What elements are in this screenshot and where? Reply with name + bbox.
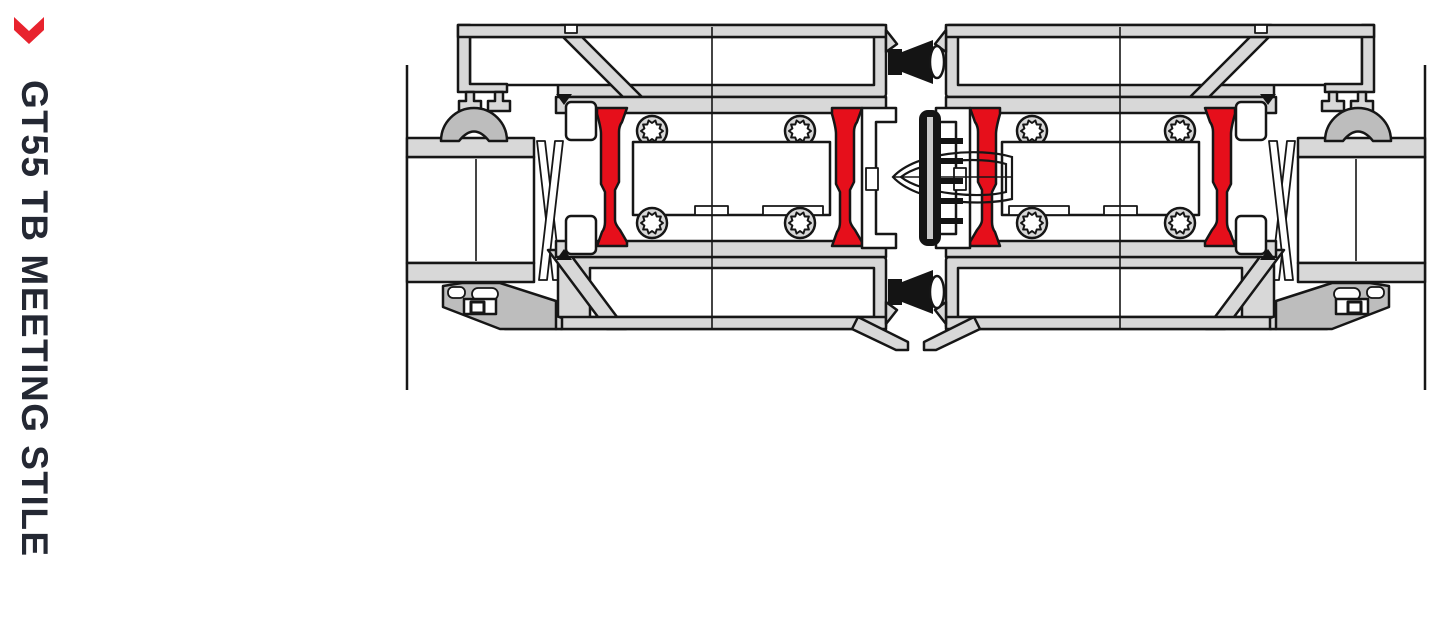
meeting-stile-cross-section: GT55 TB meeting stile cross-section: [0, 0, 1438, 634]
centre-gasket-bottom: [888, 270, 944, 314]
right-sash-profile: [924, 25, 1425, 390]
left-sash-profile: [407, 25, 908, 390]
page: { "sidebar": { "title": "GT55 TB MEETING…: [0, 0, 1438, 634]
centre-gasket-top: [888, 40, 944, 84]
